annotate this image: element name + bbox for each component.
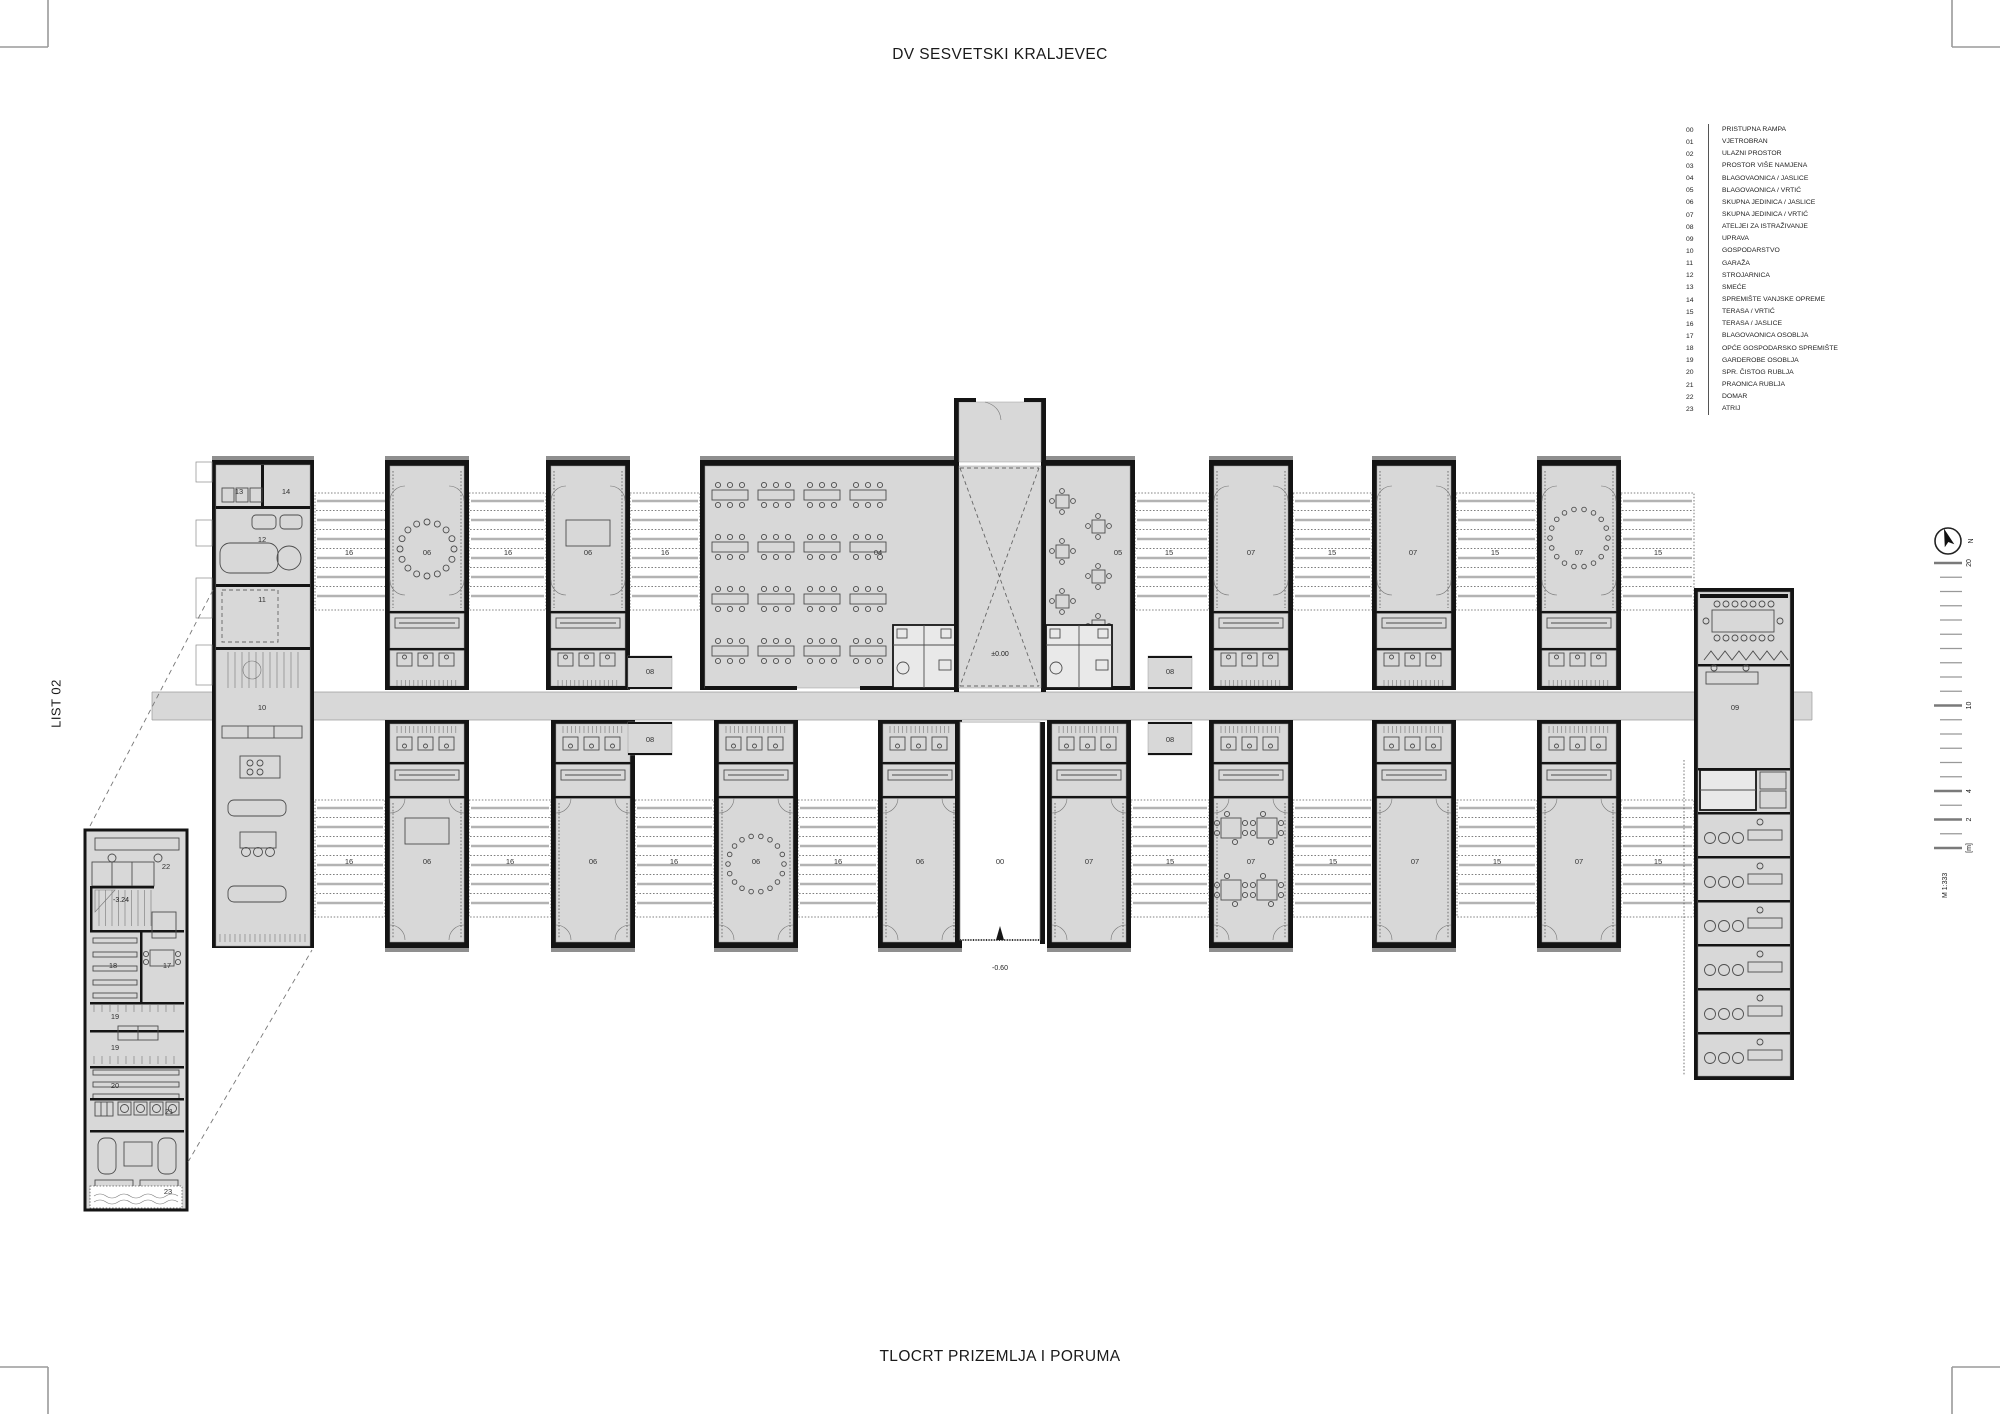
room-label-04: 04 — [874, 548, 882, 557]
scale-tick-label: 4 — [1966, 789, 1973, 793]
central-corridor — [152, 692, 1812, 720]
room-label-12: 12 — [258, 535, 266, 544]
floor-plan: 1314121110160616061604051507150715071508… — [0, 0, 2000, 1414]
unit-wing-upper — [546, 456, 630, 690]
admin-wing — [1684, 588, 1794, 1080]
room-label-21: 21 — [165, 1107, 173, 1116]
room-label-10: 10 — [258, 703, 266, 712]
room-label-06: 06 — [584, 548, 592, 557]
scale-tick-label: 20 — [1966, 559, 1973, 567]
room-label-15: 15 — [1329, 857, 1337, 866]
scale-tick-label: [m] — [1966, 843, 1973, 853]
room-label-16: 16 — [661, 548, 669, 557]
scale-tick-label: 2 — [1966, 817, 1973, 821]
level-label: ±0.00 — [991, 651, 1009, 658]
unit-wing-lower — [1209, 720, 1293, 952]
room-label-17: 17 — [163, 961, 171, 970]
room-label-16: 16 — [834, 857, 842, 866]
level-label: -0.60 — [992, 965, 1008, 972]
access-ramp — [955, 722, 1045, 944]
unit-wing-lower — [385, 720, 469, 952]
room-label-16: 16 — [504, 548, 512, 557]
sanitary-cluster — [1046, 625, 1112, 688]
room-label-16: 16 — [345, 857, 353, 866]
unit-wing-upper — [1209, 456, 1293, 690]
north-arrow-icon: N — [1935, 527, 1975, 554]
central-hall — [954, 398, 1046, 692]
room-label-07: 07 — [1575, 857, 1583, 866]
room-label-07: 07 — [1575, 548, 1583, 557]
room-label-06: 06 — [423, 548, 431, 557]
level-label: -3.24 — [113, 897, 129, 904]
unit-wing-lower — [1537, 720, 1621, 952]
room-label-15: 15 — [1654, 857, 1662, 866]
room-label-15: 15 — [1654, 548, 1662, 557]
room-label-16: 16 — [506, 857, 514, 866]
room-label-09: 09 — [1731, 703, 1739, 712]
room-label-07: 07 — [1085, 857, 1093, 866]
room-label-08: 08 — [646, 735, 654, 744]
room-label-16: 16 — [345, 548, 353, 557]
room-label-05: 05 — [1114, 548, 1122, 557]
room-label-07: 07 — [1409, 548, 1417, 557]
room-label-08: 08 — [1166, 735, 1174, 744]
room-label-15: 15 — [1166, 857, 1174, 866]
scale-ruler: 201042[m]M 1:333 — [1934, 559, 1973, 898]
room-label-11: 11 — [258, 595, 266, 604]
room-label-16: 16 — [670, 857, 678, 866]
room-label-15: 15 — [1491, 548, 1499, 557]
room-label-00: 00 — [996, 857, 1004, 866]
basement-strip — [85, 830, 187, 1210]
scale-tick-label: 10 — [1966, 702, 1973, 710]
unit-wing-upper — [1537, 456, 1621, 690]
room-label-06: 06 — [423, 857, 431, 866]
unit-wing-lower — [1372, 720, 1456, 952]
room-label-15: 15 — [1493, 857, 1501, 866]
unit-wing-upper — [1372, 456, 1456, 690]
room-label-06: 06 — [916, 857, 924, 866]
plan-drawing — [85, 398, 1812, 1210]
room-label-06: 06 — [589, 857, 597, 866]
unit-wing-lower — [878, 720, 962, 952]
room-label-07: 07 — [1411, 857, 1419, 866]
room-label-08: 08 — [1166, 667, 1174, 676]
room-label-23: 23 — [164, 1187, 172, 1196]
unit-wing-lower — [714, 720, 798, 952]
room-label-19: 19 — [111, 1012, 119, 1021]
room-label-07: 07 — [1247, 857, 1255, 866]
room-label-13: 13 — [235, 487, 243, 496]
room-label-14: 14 — [282, 487, 290, 496]
room-label-08: 08 — [646, 667, 654, 676]
room-label-19: 19 — [111, 1043, 119, 1052]
room-label-22: 22 — [162, 862, 170, 871]
scale-text: M 1:333 — [1942, 873, 1949, 898]
room-label-20: 20 — [111, 1081, 119, 1090]
sanitary-cluster — [893, 625, 955, 688]
drawing-sheet: DV SESVETSKI KRALJEVEC TLOCRT PRIZEMLJA … — [0, 0, 2000, 1414]
unit-wing-lower — [1047, 720, 1131, 952]
unit-wing-lower — [551, 720, 635, 952]
room-label-18: 18 — [109, 961, 117, 970]
room-label-07: 07 — [1247, 548, 1255, 557]
service-wing — [196, 456, 314, 948]
room-label-15: 15 — [1165, 548, 1173, 557]
room-label-06: 06 — [752, 857, 760, 866]
unit-wing-upper — [385, 456, 469, 690]
north-label: N — [1968, 538, 1975, 543]
room-label-15: 15 — [1328, 548, 1336, 557]
